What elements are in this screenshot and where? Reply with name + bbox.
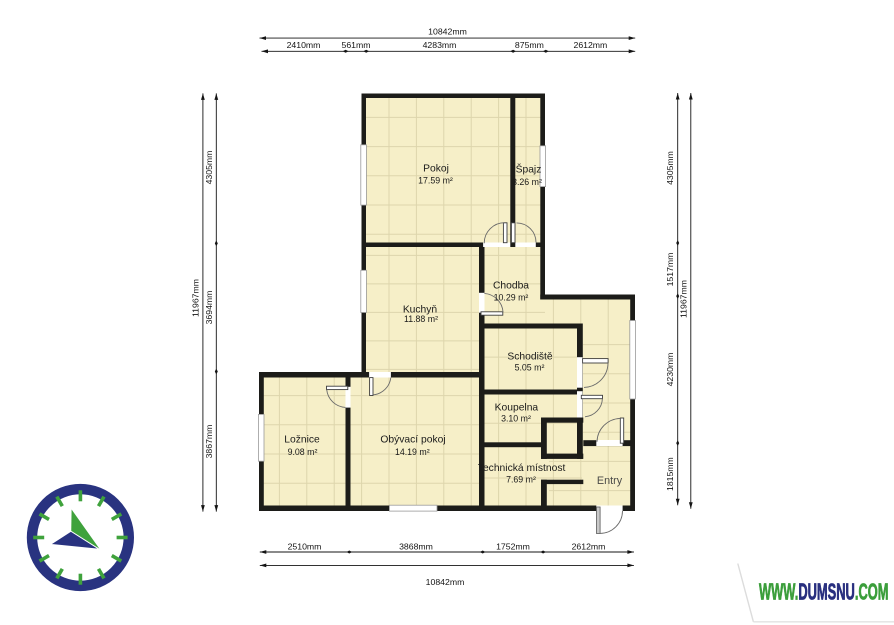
svg-text:2410mm: 2410mm <box>287 40 321 50</box>
svg-text:2612mm: 2612mm <box>572 542 606 552</box>
svg-text:3694mm: 3694mm <box>204 291 214 325</box>
svg-text:3.10 m²: 3.10 m² <box>501 414 531 424</box>
svg-text:17.59 m²: 17.59 m² <box>418 175 453 185</box>
svg-text:Chodba: Chodba <box>493 281 529 292</box>
svg-text:Ložnice: Ložnice <box>284 434 320 445</box>
svg-text:1815mm: 1815mm <box>665 457 675 491</box>
svg-text:14.19 m²: 14.19 m² <box>395 447 430 457</box>
svg-text:3.26 m²: 3.26 m² <box>512 177 542 187</box>
svg-text:Špajz: Špajz <box>516 162 542 175</box>
svg-text:4283mm: 4283mm <box>423 40 457 50</box>
svg-text:1517mm: 1517mm <box>665 253 675 287</box>
svg-text:11967mm: 11967mm <box>678 280 688 318</box>
svg-text:7.69 m²: 7.69 m² <box>506 475 536 485</box>
svg-text:4230mm: 4230mm <box>665 353 675 387</box>
svg-text:3868mm: 3868mm <box>399 542 433 552</box>
svg-text:561mm: 561mm <box>342 40 371 50</box>
svg-text:Pokoj: Pokoj <box>423 163 449 174</box>
svg-text:2612mm: 2612mm <box>573 40 607 50</box>
svg-text:5.05 m²: 5.05 m² <box>515 363 545 373</box>
svg-text:9.08 m²: 9.08 m² <box>288 447 318 457</box>
svg-text:4305mm: 4305mm <box>204 151 214 185</box>
svg-text:Koupelna: Koupelna <box>495 403 539 414</box>
svg-text:11967mm: 11967mm <box>190 279 200 317</box>
svg-text:4305mm: 4305mm <box>665 151 675 185</box>
svg-text:875mm: 875mm <box>515 40 544 50</box>
svg-text:3867mm: 3867mm <box>204 425 214 459</box>
svg-text:WWW.DUMSNU.COM: WWW.DUMSNU.COM <box>759 579 889 605</box>
svg-text:Schodiště: Schodiště <box>507 352 552 363</box>
svg-text:10842mm: 10842mm <box>426 577 465 587</box>
svg-text:2510mm: 2510mm <box>288 542 322 552</box>
svg-text:Technická místnost: Technická místnost <box>478 463 566 474</box>
svg-text:10842mm: 10842mm <box>428 27 467 37</box>
svg-text:1752mm: 1752mm <box>496 542 530 552</box>
svg-text:10.29 m²: 10.29 m² <box>494 292 529 302</box>
svg-text:11.88 m²: 11.88 m² <box>404 314 438 324</box>
svg-text:Obývací pokoj: Obývací pokoj <box>380 434 445 445</box>
svg-text:Entry: Entry <box>597 475 623 487</box>
